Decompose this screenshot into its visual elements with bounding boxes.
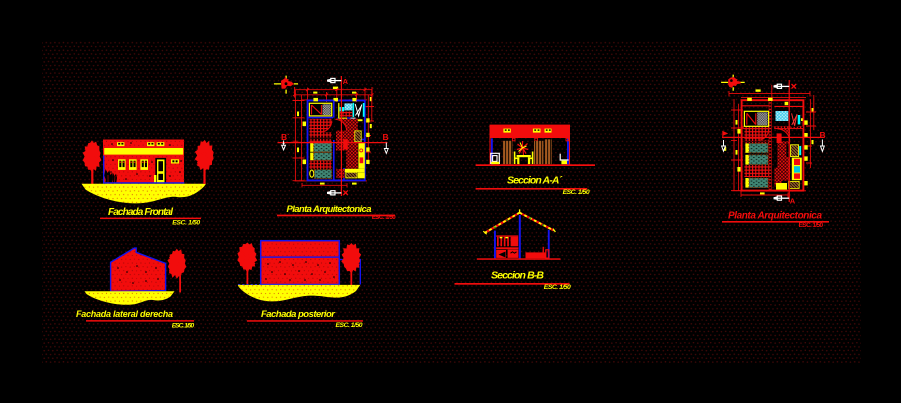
svg-text:B´: B´: [281, 132, 290, 142]
svg-text:Fachada lateral derecha: Fachada lateral derecha: [76, 309, 173, 319]
svg-text:ESC. 1/50: ESC. 1/50: [336, 322, 363, 329]
svg-text:B: B: [820, 130, 826, 140]
svg-text:Fachada Frontal: Fachada Frontal: [108, 207, 173, 218]
svg-text:A: A: [790, 197, 796, 206]
svg-text:A: A: [343, 77, 349, 86]
svg-text:Seccion B-B: Seccion B-B: [491, 270, 544, 282]
svg-text:ESC. 1/50: ESC. 1/50: [563, 189, 590, 196]
svg-text:ESC. 1/50: ESC. 1/50: [799, 222, 824, 229]
svg-text:Planta Arquitectonica: Planta Arquitectonica: [728, 211, 822, 222]
svg-text:ESC. 1/50: ESC. 1/50: [372, 214, 397, 221]
svg-text:Seccion A-A´: Seccion A-A´: [507, 175, 564, 187]
svg-text:Planta Arquitectonica: Planta Arquitectonica: [287, 204, 372, 215]
svg-text:ESC. 1/50: ESC. 1/50: [544, 284, 571, 291]
svg-text:B: B: [383, 132, 389, 142]
svg-text:Fachada posterior: Fachada posterior: [261, 309, 336, 320]
svg-text:ESC. 1/50: ESC. 1/50: [172, 323, 195, 330]
svg-text:ESC. 1/50: ESC. 1/50: [172, 220, 200, 227]
